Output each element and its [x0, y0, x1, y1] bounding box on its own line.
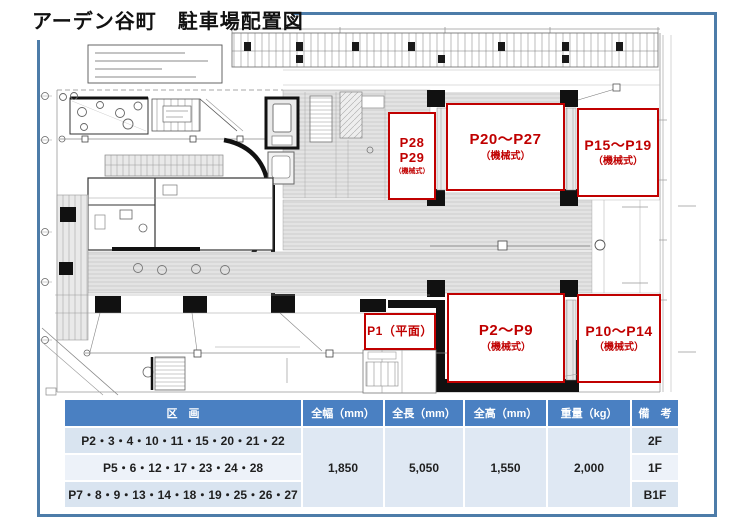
zone-type-label: （機械式）: [481, 151, 531, 163]
zone-label: P29: [400, 151, 425, 166]
zone-box-p1: P1（平面）: [364, 313, 436, 350]
spec-table: 区 画 全幅（mm） 全長（mm） 全高（mm） 重量（kg） 備 考 P2・3…: [65, 400, 678, 507]
spec-length-value: 5,050: [385, 428, 463, 507]
planter-room: [60, 93, 149, 135]
zone-type-label: （機械式）: [593, 156, 643, 168]
left-dim-circles: [38, 93, 52, 344]
table-row-section: P7・8・9・13・14・18・19・25・26・27: [65, 482, 301, 507]
note-box: [88, 45, 222, 83]
frame-bottom-line: [37, 514, 717, 517]
col-header-height: 全高（mm）: [465, 400, 546, 426]
zone-label: P20～P27: [470, 131, 542, 148]
zone-type-label: （機械式）: [395, 168, 430, 176]
stair-block-top: [152, 99, 243, 131]
left-rooms: [88, 178, 273, 250]
col-header-width: 全幅（mm）: [303, 400, 383, 426]
spec-weight-value: 2,000: [548, 428, 630, 507]
frame-left-line: [37, 40, 40, 517]
frame-right-line: [714, 12, 717, 517]
zone-box-p20-p27: P20～P27 （機械式）: [446, 103, 565, 191]
bicycle-rack-strip: [232, 33, 658, 67]
spec-width-value: 1,850: [303, 428, 383, 507]
col-header-note: 備 考: [632, 400, 678, 426]
frame-top-line: [293, 12, 717, 15]
table-row-section: P2・3・4・10・11・15・20・21・22: [65, 428, 301, 453]
zone-label: P10～P14: [585, 323, 652, 339]
zone-box-p2-p9: P2～P9 （機械式）: [447, 293, 565, 383]
zone-type-label: （機械式）: [481, 342, 531, 354]
zone-label: P2～P9: [479, 322, 533, 339]
zone-box-p15-p19: P15～P19 （機械式）: [577, 108, 659, 197]
zone-label: P1（平面）: [367, 325, 433, 339]
zone-label: P15～P19: [584, 137, 651, 153]
table-row-section: P5・6・12・17・23・24・28: [65, 455, 301, 480]
col-header-length: 全長（mm）: [385, 400, 463, 426]
rack-strip: [105, 155, 223, 176]
spec-height-value: 1,550: [465, 428, 546, 507]
left-strip: [57, 195, 88, 340]
zone-label: P28: [400, 136, 425, 151]
zone-type-label: （機械式）: [594, 342, 644, 354]
page-title: アーデン谷町 駐車場配置図: [32, 5, 304, 34]
table-row-note: B1F: [632, 482, 678, 507]
table-row-note: 2F: [632, 428, 678, 453]
col-header-weight: 重量（kg）: [548, 400, 630, 426]
zone-box-p10-p14: P10～P14 （機械式）: [577, 294, 661, 383]
table-row-note: 1F: [632, 455, 678, 480]
zone-box-p28-p29: P28 P29 （機械式）: [388, 112, 436, 200]
col-header-section: 区 画: [65, 400, 301, 426]
